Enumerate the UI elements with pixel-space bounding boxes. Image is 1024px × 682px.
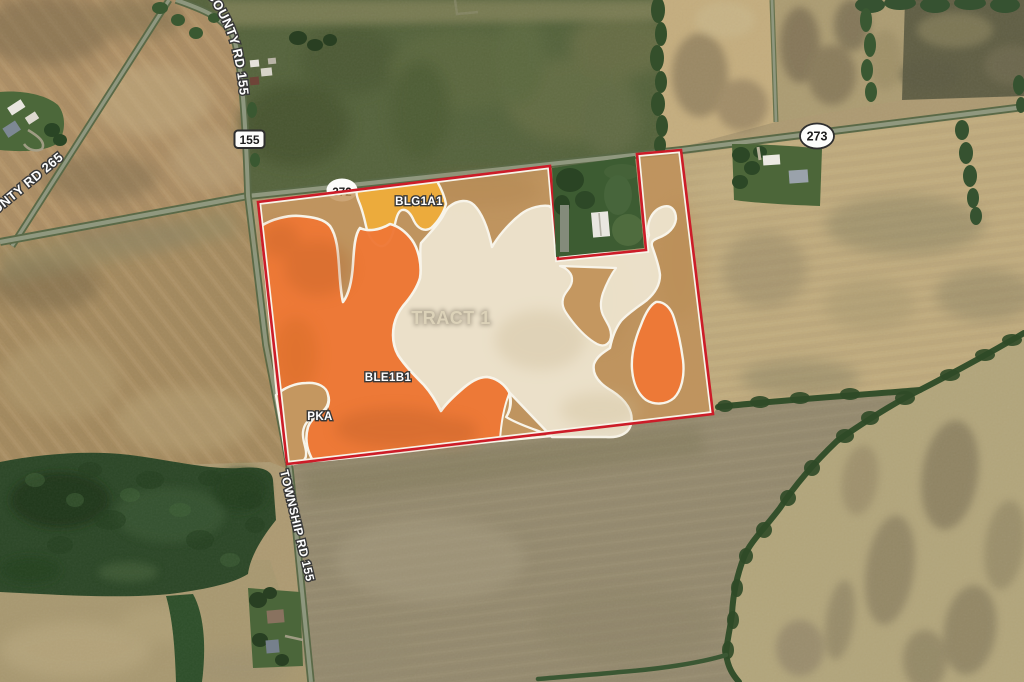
svg-text:PKA: PKA — [307, 411, 332, 423]
svg-text:TRACT 1: TRACT 1 — [411, 308, 491, 328]
svg-text:273: 273 — [807, 130, 828, 144]
svg-text:BLE1B1: BLE1B1 — [365, 372, 412, 384]
svg-text:155: 155 — [239, 133, 259, 147]
svg-text:BLG1A1: BLG1A1 — [395, 196, 443, 208]
